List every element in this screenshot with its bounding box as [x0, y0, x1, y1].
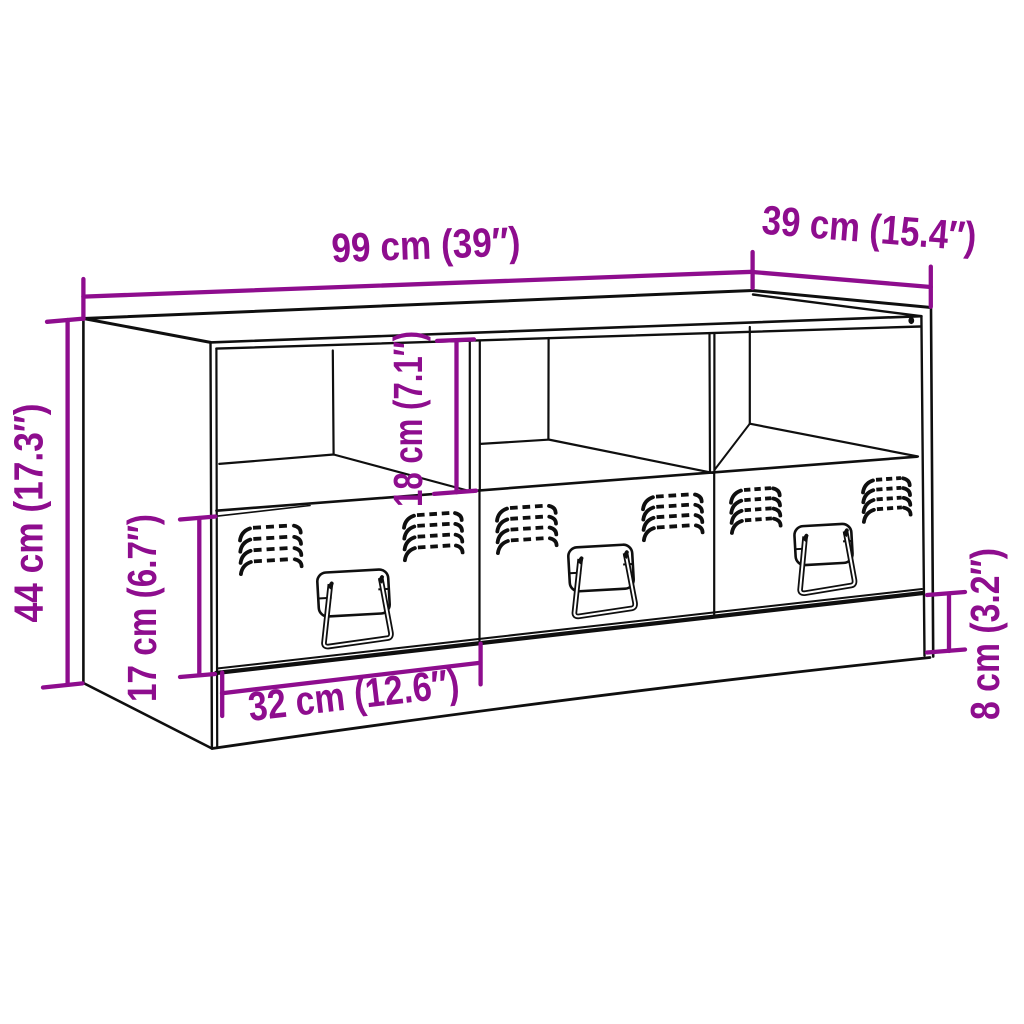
svg-text:18 cm (7.1″): 18 cm (7.1″): [385, 331, 431, 507]
svg-text:17 cm (6.7″): 17 cm (6.7″): [119, 514, 165, 702]
svg-text:44 cm (17.3″): 44 cm (17.3″): [5, 404, 51, 623]
svg-text:99 cm (39″): 99 cm (39″): [331, 218, 522, 271]
svg-text:39 cm (15.4″): 39 cm (15.4″): [760, 197, 978, 260]
svg-text:8 cm (3.2″): 8 cm (3.2″): [962, 548, 1008, 720]
